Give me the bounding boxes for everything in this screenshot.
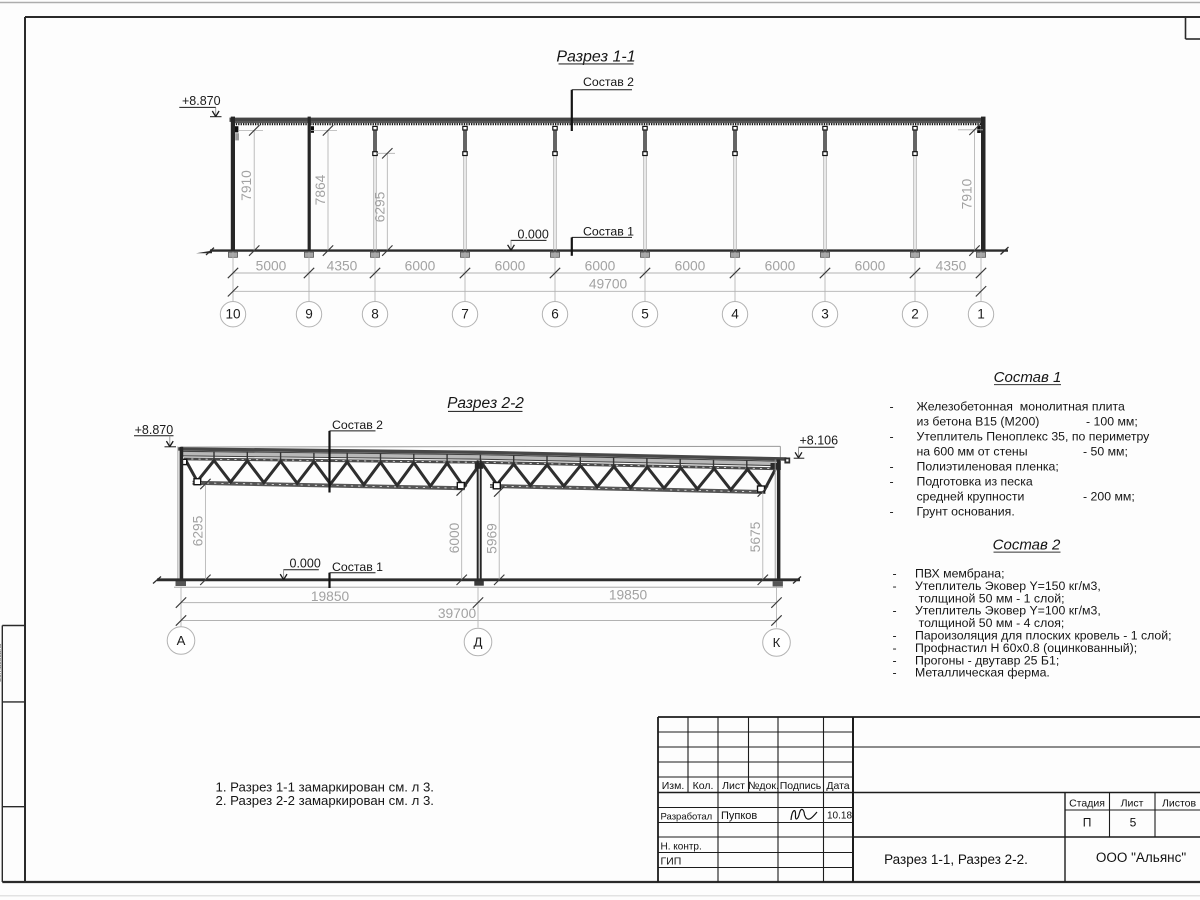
svg-text:П: П [1083,816,1092,830]
svg-text:А: А [177,633,186,648]
svg-text:-: - [893,604,897,618]
svg-text:Состав 2: Состав 2 [583,75,634,89]
svg-text:-: - [890,505,894,519]
svg-text:на 600 мм от стены: на 600 мм от стены [917,445,1028,459]
svg-text:10.18: 10.18 [827,811,852,822]
svg-text:5000: 5000 [256,259,287,274]
svg-text:6000: 6000 [855,259,886,274]
svg-text:1: 1 [977,307,985,322]
svg-text:ООО "Альянс": ООО "Альянс" [1096,850,1186,865]
svg-text:5: 5 [641,307,649,322]
svg-text:К: К [773,635,781,650]
svg-text:Разрез 1-1, Разрез 2-2.: Разрез 1-1, Разрез 2-2. [884,852,1028,867]
svg-text:6295: 6295 [191,515,206,546]
svg-text:Разрез 1-1: Разрез 1-1 [556,48,635,65]
svg-text:Железобетонная монолитная пли: Железобетонная монолитная плита [917,400,1126,414]
svg-text:7910: 7910 [959,178,974,209]
svg-text:Полиэтиленовая пленка;: Полиэтиленовая пленка; [917,460,1059,474]
svg-text:-: - [893,579,897,593]
svg-text:Состав 2: Состав 2 [993,536,1061,553]
svg-text:Состав 1: Состав 1 [583,224,634,238]
svg-text:4: 4 [731,307,739,322]
svg-text:3: 3 [821,307,829,322]
svg-text:7: 7 [461,307,469,322]
svg-text:2. Разрез 2-2 замаркирован см.: 2. Разрез 2-2 замаркирован см. л 3. [216,793,434,808]
svg-text:6000: 6000 [585,259,616,274]
svg-text:Состав 1: Состав 1 [994,369,1062,386]
svg-text:7910: 7910 [239,170,254,201]
svg-text:-: - [890,400,894,414]
svg-text:ГИП: ГИП [661,856,682,868]
svg-text:Дата: Дата [826,780,849,792]
svg-text:5675: 5675 [748,521,763,552]
svg-text:2: 2 [911,307,919,322]
svg-text:6000: 6000 [405,259,436,274]
svg-text:6000: 6000 [765,259,796,274]
svg-text:-: - [890,460,894,474]
svg-text:7864: 7864 [313,174,328,205]
svg-text:Разработал: Разработал [661,812,713,823]
svg-text:Н. контр.: Н. контр. [661,842,702,853]
svg-text:Состав 1: Состав 1 [332,560,383,574]
svg-text:Лист: Лист [1121,798,1144,810]
svg-text:8: 8 [371,307,379,322]
svg-text:0.000: 0.000 [518,227,549,241]
svg-text:Кол.: Кол. [693,780,714,792]
svg-text:- 100 мм;: - 100 мм; [1086,415,1138,429]
svg-text:6295: 6295 [372,191,387,222]
svg-text:средней крупности: средней крупности [917,490,1025,504]
svg-text:Лист: Лист [722,780,745,792]
svg-text:5: 5 [1130,816,1137,830]
svg-text:9: 9 [305,307,313,322]
svg-text:+8.870: +8.870 [135,423,174,437]
svg-text:6000: 6000 [495,259,526,274]
svg-text:- 200 мм;: - 200 мм; [1083,490,1135,504]
svg-text:19850: 19850 [311,589,350,604]
svg-text:Грунт основания.: Грунт основания. [917,505,1015,519]
svg-text:из бетона В15 (М200): из бетона В15 (М200) [917,415,1040,429]
svg-text:Подготовка из песка: Подготовка из песка [917,475,1033,489]
svg-text:10: 10 [225,307,241,322]
svg-text:4350: 4350 [936,259,967,274]
svg-text:5969: 5969 [484,523,499,554]
svg-text:Стадия: Стадия [1069,798,1105,810]
svg-text:+8.870: +8.870 [182,94,221,108]
svg-text:-: - [893,666,897,680]
svg-text:Подпись: Подпись [780,780,822,792]
svg-text:-: - [890,475,894,489]
svg-text:Утеплитель Пеноплекс 35, по пе: Утеплитель Пеноплекс 35, по периметру [917,430,1151,444]
svg-text:+8.106: +8.106 [800,434,839,448]
svg-text:Металлическая ферма.: Металлическая ферма. [915,666,1050,680]
svg-text:- 50 мм;: - 50 мм; [1083,445,1128,459]
svg-text:39700: 39700 [438,606,477,621]
svg-text:19850: 19850 [609,588,648,603]
svg-text:Пупков: Пупков [721,810,757,822]
svg-text:-: - [890,430,894,444]
svg-text:Согласовано: Согласовано [0,643,3,682]
svg-text:49700: 49700 [589,277,628,292]
svg-text:Разрез 2-2: Разрез 2-2 [447,395,524,412]
svg-text:6: 6 [551,307,559,322]
svg-text:0.000: 0.000 [290,556,321,570]
svg-text:Д: Д [474,635,483,650]
svg-text:6000: 6000 [675,259,706,274]
svg-text:4350: 4350 [327,259,358,274]
svg-text:Изм.: Изм. [662,780,685,792]
svg-text:№док.: №док. [748,780,779,792]
svg-text:Состав 2: Состав 2 [332,418,383,432]
svg-text:Листов: Листов [1162,798,1197,810]
svg-text:6000: 6000 [447,522,462,553]
